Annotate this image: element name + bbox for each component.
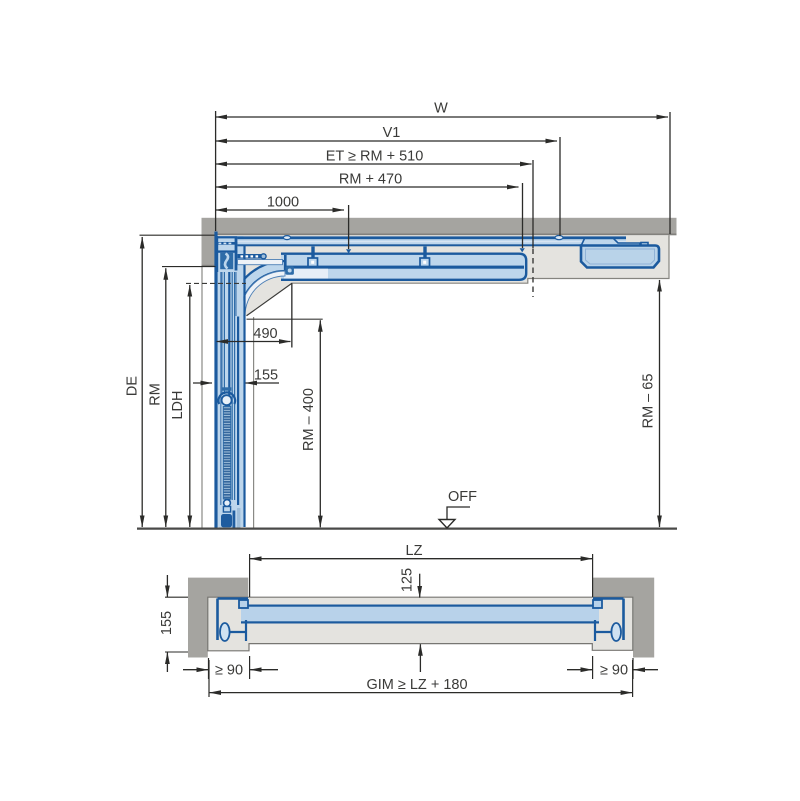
- svg-text:RM – 400: RM – 400: [301, 388, 317, 451]
- svg-text:ET ≥ RM + 510: ET ≥ RM + 510: [326, 149, 424, 165]
- svg-text:RM: RM: [148, 383, 164, 406]
- svg-text:OFF: OFF: [448, 489, 477, 505]
- svg-text:155: 155: [159, 611, 175, 635]
- svg-text:V1: V1: [383, 125, 401, 141]
- svg-text:LZ: LZ: [406, 543, 423, 559]
- svg-text:125: 125: [400, 568, 416, 592]
- svg-text:≥ 90: ≥ 90: [600, 663, 628, 679]
- svg-text:490: 490: [253, 326, 277, 342]
- svg-text:GIM ≥ LZ + 180: GIM ≥ LZ + 180: [366, 677, 467, 693]
- svg-text:RM – 65: RM – 65: [641, 374, 657, 429]
- svg-text:W: W: [434, 101, 448, 117]
- svg-text:1000: 1000: [267, 195, 299, 211]
- svg-text:≥ 90: ≥ 90: [215, 663, 243, 679]
- svg-text:DE: DE: [125, 376, 141, 396]
- svg-text:155: 155: [254, 368, 278, 384]
- svg-text:LDH: LDH: [170, 390, 186, 419]
- svg-text:RM + 470: RM + 470: [339, 172, 402, 188]
